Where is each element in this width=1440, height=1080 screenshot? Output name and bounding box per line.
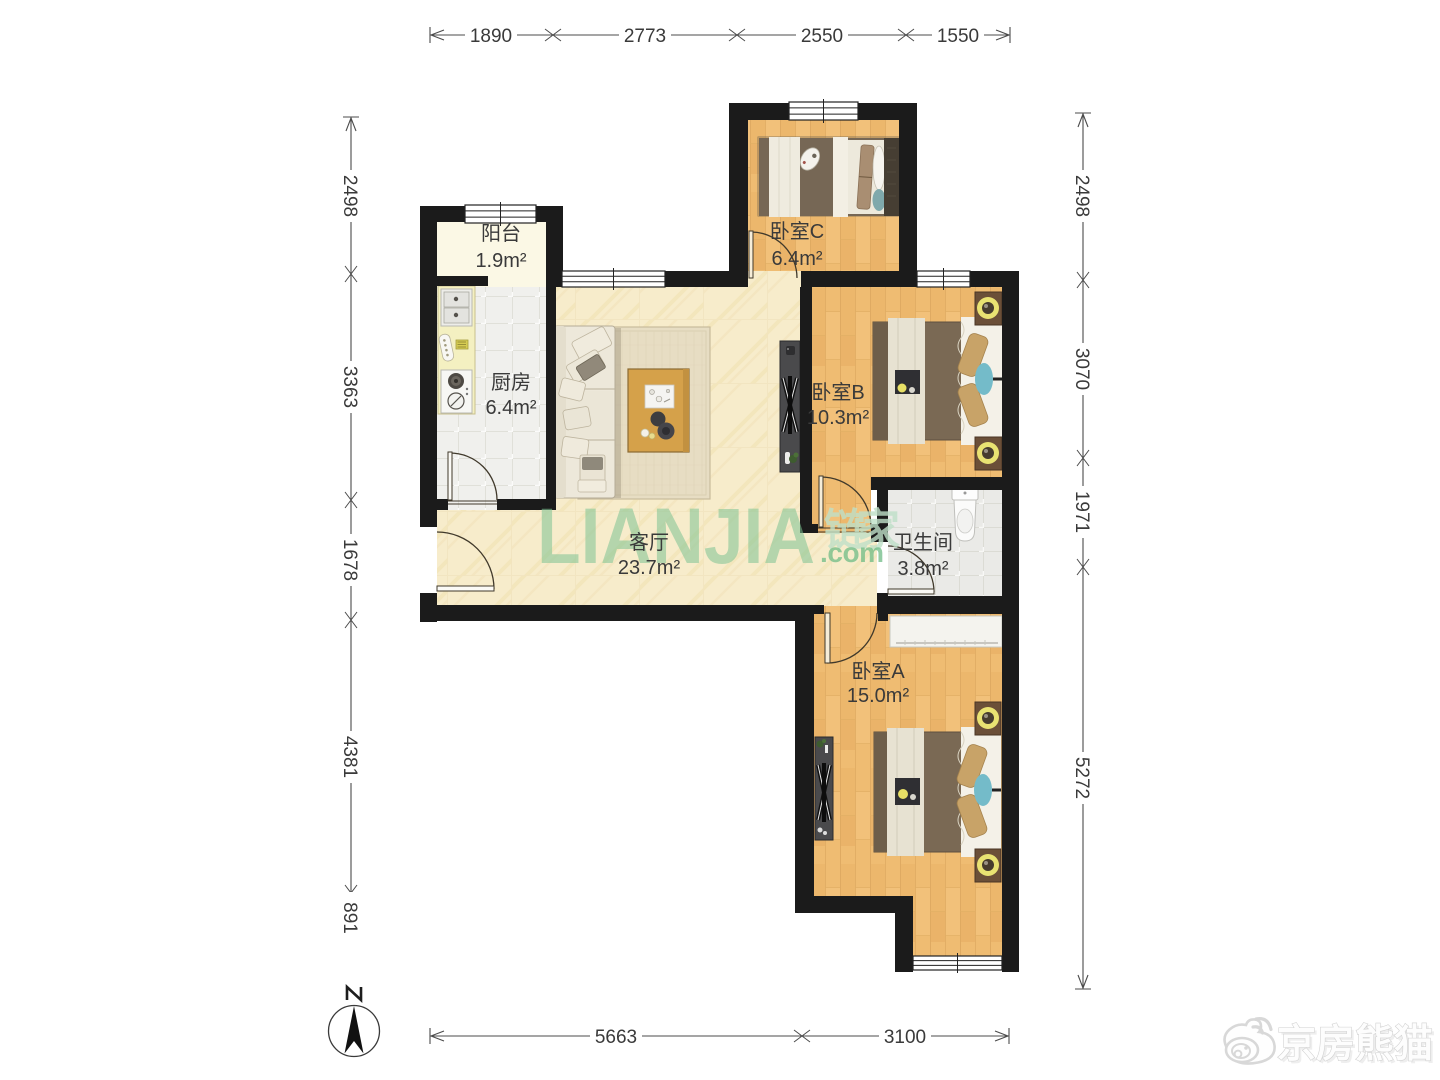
svg-text:891: 891: [339, 902, 360, 934]
svg-text:京房熊猫: 京房熊猫: [1277, 1023, 1433, 1066]
svg-text:23.7m²: 23.7m²: [618, 557, 681, 579]
svg-text:客厅: 客厅: [629, 531, 669, 554]
svg-text:2550: 2550: [801, 26, 843, 47]
svg-text:.com: .com: [820, 537, 884, 568]
svg-text:5663: 5663: [595, 1027, 637, 1048]
svg-text:2498: 2498: [339, 175, 360, 217]
svg-text:卧室C: 卧室C: [770, 220, 824, 243]
svg-text:10.3m²: 10.3m²: [807, 407, 870, 429]
svg-text:1971: 1971: [1071, 491, 1092, 533]
svg-text:3100: 3100: [884, 1027, 926, 1048]
svg-text:2498: 2498: [1071, 175, 1092, 217]
svg-text:15.0m²: 15.0m²: [847, 685, 910, 707]
svg-text:厨房: 厨房: [491, 371, 531, 394]
svg-text:4381: 4381: [339, 736, 360, 778]
svg-text:2773: 2773: [624, 26, 666, 47]
svg-text:阳台: 阳台: [481, 222, 521, 245]
svg-text:6.4m²: 6.4m²: [485, 397, 536, 419]
svg-text:1890: 1890: [470, 26, 512, 47]
svg-text:卫生间: 卫生间: [893, 531, 953, 554]
svg-text:6.4m²: 6.4m²: [771, 248, 822, 270]
svg-text:1550: 1550: [937, 26, 979, 47]
svg-text:3363: 3363: [339, 366, 360, 408]
svg-text:1.9m²: 1.9m²: [475, 250, 526, 272]
svg-text:3070: 3070: [1071, 348, 1092, 390]
svg-text:3.8m²: 3.8m²: [897, 558, 948, 580]
svg-text:5272: 5272: [1071, 757, 1092, 799]
svg-text:1678: 1678: [339, 539, 360, 581]
svg-text:卧室B: 卧室B: [811, 381, 864, 404]
svg-text:卧室A: 卧室A: [851, 660, 905, 683]
